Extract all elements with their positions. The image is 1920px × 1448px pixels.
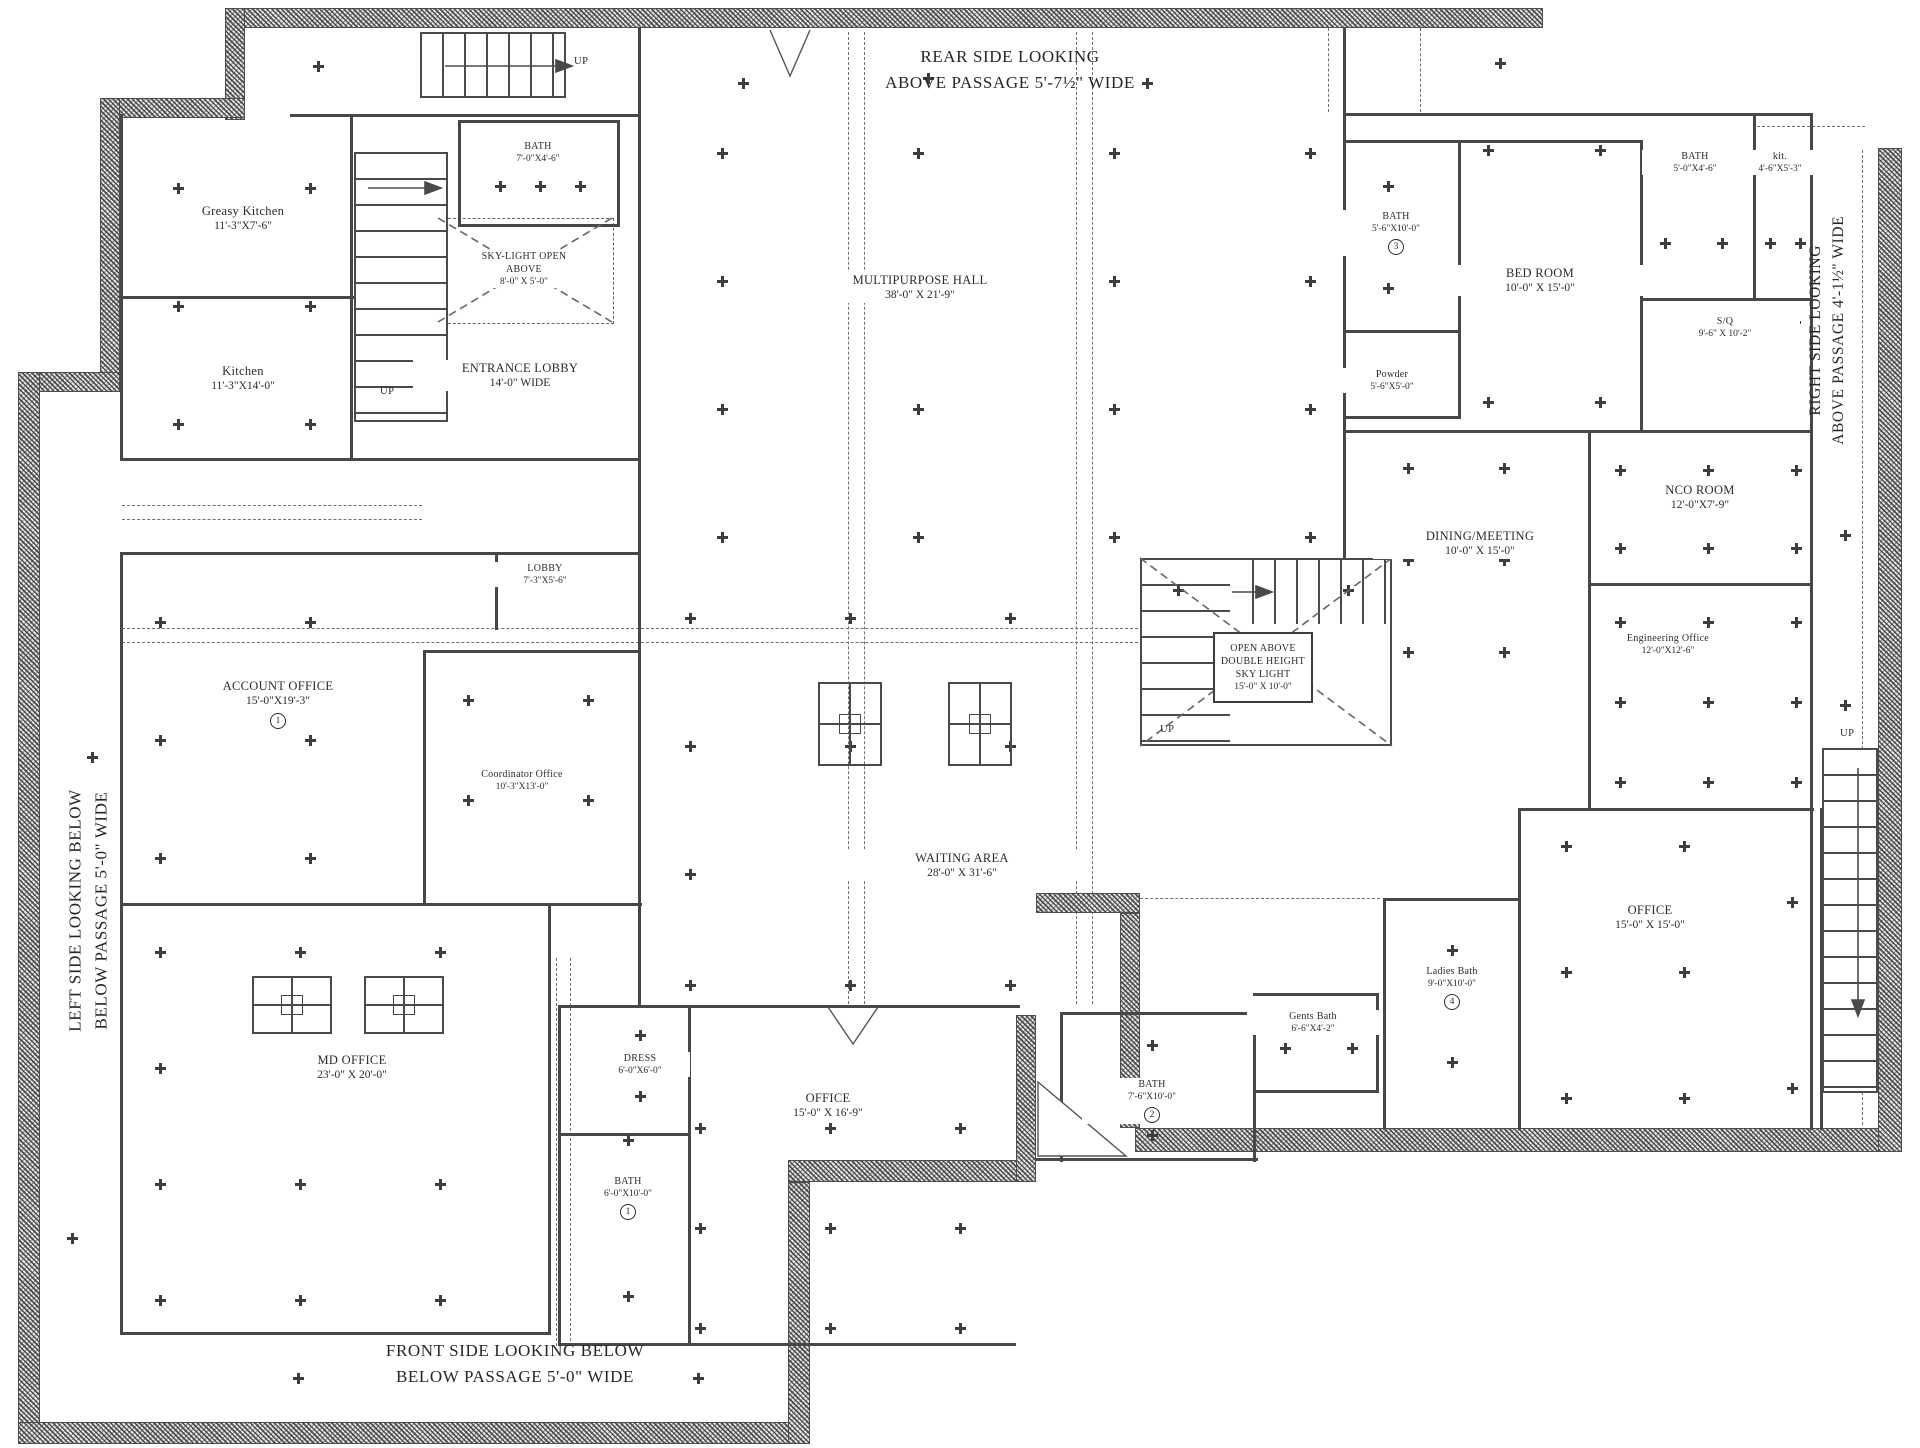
room-label-greasy-kitchen: Greasy Kitchen11'-3"X7'-6" xyxy=(148,203,338,234)
room-name: Gents Bath xyxy=(1247,1010,1379,1023)
room-dimensions: 7'-3"X5'-6" xyxy=(490,575,600,587)
room-label-account-office: ACCOUNT OFFICE15'-0"X19'-3"1 xyxy=(196,678,361,730)
right-note-line1: RIGHT SIDE LOOKING xyxy=(1804,110,1827,550)
room-dimensions: 6'-0"X10'-0" xyxy=(572,1188,684,1200)
room-dimensions: 11'-3"X14'-0" xyxy=(163,379,323,394)
room-label-bath-two: BATH7'-6"X10'-0"2 xyxy=(1082,1078,1222,1124)
room-label-gents-bath: Gents Bath6'-6"X4'-2" xyxy=(1247,1010,1379,1035)
room-dimensions: 10'-3"X13'-0" xyxy=(455,781,590,793)
room-dimensions: 7'-0"X4'-6" xyxy=(478,153,598,165)
room-label-md-office: MD OFFICE23'-0" X 20'-0" xyxy=(255,1052,450,1083)
room-dimensions: 15'-0" X 15'-0" xyxy=(1563,918,1738,933)
front-note-line2: BELOW PASSAGE 5'-0" WIDE xyxy=(215,1364,815,1390)
room-name: OFFICE xyxy=(741,1090,916,1106)
room-dimensions: 8'-0" X 5'-0" xyxy=(465,276,583,288)
room-name: BED ROOM xyxy=(1433,265,1648,281)
stair-up-label: UP xyxy=(1840,728,1854,739)
left-note-line2: BELOW PASSAGE 5'-0" WIDE xyxy=(88,611,114,1211)
room-label-dress: DRESS6'-0"X6'-0" xyxy=(590,1052,690,1077)
room-dimensions: 12'-0"X7'-9" xyxy=(1605,498,1795,513)
room-dimensions: 15'-0" X 10'-0" xyxy=(1217,681,1309,693)
room-name: LOBBY xyxy=(490,562,600,575)
room-label-servant-quarter: S/Q9'-6" X 10'-2" xyxy=(1650,315,1800,340)
room-dimensions: 10'-0" X 15'-0" xyxy=(1433,281,1648,296)
room-label-dining-meeting: DINING/MEETING10'-0" X 15'-0" xyxy=(1373,528,1588,559)
room-dimensions: 5'-6"X10'-0" xyxy=(1342,223,1450,235)
fixture-count-badge: 1 xyxy=(270,713,286,729)
room-label-multipurpose-hall: MULTIPURPOSE HALL38'-0" X 21'-9" xyxy=(820,272,1020,303)
right-side-note: RIGHT SIDE LOOKING ABOVE PASSAGE 4'-1½" … xyxy=(1804,110,1851,550)
room-label-bath-top: BATH7'-0"X4'-6" xyxy=(478,140,598,165)
floor-plan-canvas: REAR SIDE LOOKING ABOVE PASSAGE 5'-7½" W… xyxy=(0,0,1920,1448)
room-label-skylight: SKY-LIGHT OPEN ABOVE8'-0" X 5'-0" xyxy=(465,250,583,288)
room-label-office-front: OFFICE15'-0" X 16'-9" xyxy=(741,1090,916,1121)
room-dimensions: 15'-0" X 16'-9" xyxy=(741,1106,916,1121)
room-label-waiting-area: WAITING AREA28'-0" X 31'-6" xyxy=(845,850,1080,881)
room-name: BATH xyxy=(478,140,598,153)
fixture-count-badge: 3 xyxy=(1388,239,1404,255)
room-label-engineering-office: Engineering Office12'-0"X12'-6" xyxy=(1603,632,1733,657)
stair-up-label: UP xyxy=(1160,724,1174,735)
room-name: Powder xyxy=(1339,368,1445,381)
room-dimensions: 10'-0" X 15'-0" xyxy=(1373,544,1588,559)
room-label-coordinator-office: Coordinator Office10'-3"X13'-0" xyxy=(455,768,590,793)
room-label-office-right: OFFICE15'-0" X 15'-0" xyxy=(1563,902,1738,933)
room-name: BATH xyxy=(1082,1078,1222,1091)
room-name: BATH xyxy=(572,1175,684,1188)
room-label-bed-room: BED ROOM10'-0" X 15'-0" xyxy=(1433,265,1648,296)
room-name: ACCOUNT OFFICE xyxy=(196,678,361,694)
room-dimensions: 15'-0"X19'-3" xyxy=(196,694,361,709)
room-label-bath-md: BATH6'-0"X10'-0"1 xyxy=(572,1175,684,1221)
room-dimensions: 38'-0" X 21'-9" xyxy=(820,288,1020,303)
fixture-count-badge: 2 xyxy=(1144,1107,1160,1123)
front-note-line1: FRONT SIDE LOOKING BELOW xyxy=(215,1338,815,1364)
front-side-note: FRONT SIDE LOOKING BELOW BELOW PASSAGE 5… xyxy=(215,1338,815,1389)
room-name: Engineering Office xyxy=(1603,632,1733,645)
room-dimensions: 6'-0"X6'-0" xyxy=(590,1065,690,1077)
stair-up-label: UP xyxy=(574,56,588,67)
room-dimensions: 9'-0"X10'-0" xyxy=(1386,978,1518,990)
room-label-powder: Powder5'-6"X5'-0" xyxy=(1339,368,1445,393)
room-name: WAITING AREA xyxy=(845,850,1080,866)
room-dimensions: 12'-0"X12'-6" xyxy=(1603,645,1733,657)
room-name: DRESS xyxy=(590,1052,690,1065)
fixture-count-badge: 1 xyxy=(620,1204,636,1220)
door-swing-icon xyxy=(770,30,1126,1156)
stair-direction-arrow-icon xyxy=(368,60,1864,1016)
room-name: BATH xyxy=(1342,210,1450,223)
left-side-note: LEFT SIDE LOOKING BELOW BELOW PASSAGE 5'… xyxy=(63,611,114,1211)
room-label-nco-room: NCO ROOM12'-0"X7'-9" xyxy=(1605,482,1795,513)
rear-note-line2: ABOVE PASSAGE 5'-7½" WIDE xyxy=(750,70,1270,96)
room-name: ENTRANCE LOBBY xyxy=(413,360,628,376)
room-name: OPEN ABOVE DOUBLE HEIGHT SKY LIGHT xyxy=(1217,642,1309,681)
stair-up-label: UP xyxy=(380,386,394,397)
room-label-entrance-lobby: ENTRANCE LOBBY14'-0" WIDE xyxy=(413,360,628,391)
room-label-lobby: LOBBY7'-3"X5'-6" xyxy=(490,562,600,587)
room-dimensions: 11'-3"X7'-6" xyxy=(148,219,338,234)
room-name: DINING/MEETING xyxy=(1373,528,1588,544)
rear-note-line1: REAR SIDE LOOKING xyxy=(750,44,1270,70)
room-name: OFFICE xyxy=(1563,902,1738,918)
room-name: MD OFFICE xyxy=(255,1052,450,1068)
room-name: SKY-LIGHT OPEN ABOVE xyxy=(465,250,583,276)
room-dimensions: 23'-0" X 20'-0" xyxy=(255,1068,450,1083)
left-note-line1: LEFT SIDE LOOKING BELOW xyxy=(63,611,89,1211)
room-label-ladies-bath: Ladies Bath9'-0"X10'-0"4 xyxy=(1386,965,1518,1011)
room-label-open-above: OPEN ABOVE DOUBLE HEIGHT SKY LIGHT15'-0"… xyxy=(1213,632,1313,703)
room-dimensions: 14'-0" WIDE xyxy=(413,376,628,391)
room-dimensions: 6'-6"X4'-2" xyxy=(1247,1023,1379,1035)
room-dimensions: 9'-6" X 10'-2" xyxy=(1650,328,1800,340)
room-name: Greasy Kitchen xyxy=(148,203,338,219)
room-dimensions: 28'-0" X 31'-6" xyxy=(845,866,1080,881)
room-label-bath-master: BATH5'-6"X10'-0"3 xyxy=(1342,210,1450,256)
rear-side-note: REAR SIDE LOOKING ABOVE PASSAGE 5'-7½" W… xyxy=(750,44,1270,95)
room-name: Kitchen xyxy=(163,363,323,379)
room-name: Coordinator Office xyxy=(455,768,590,781)
room-label-kitchen: Kitchen11'-3"X14'-0" xyxy=(163,363,323,394)
room-name: Ladies Bath xyxy=(1386,965,1518,978)
room-name: NCO ROOM xyxy=(1605,482,1795,498)
room-dimensions: 5'-6"X5'-0" xyxy=(1339,381,1445,393)
room-name: S/Q xyxy=(1650,315,1800,328)
fixture-count-badge: 4 xyxy=(1444,994,1460,1010)
room-dimensions: 7'-6"X10'-0" xyxy=(1082,1091,1222,1103)
room-name: MULTIPURPOSE HALL xyxy=(820,272,1020,288)
right-note-line2: ABOVE PASSAGE 4'-1½" WIDE xyxy=(1827,110,1850,550)
